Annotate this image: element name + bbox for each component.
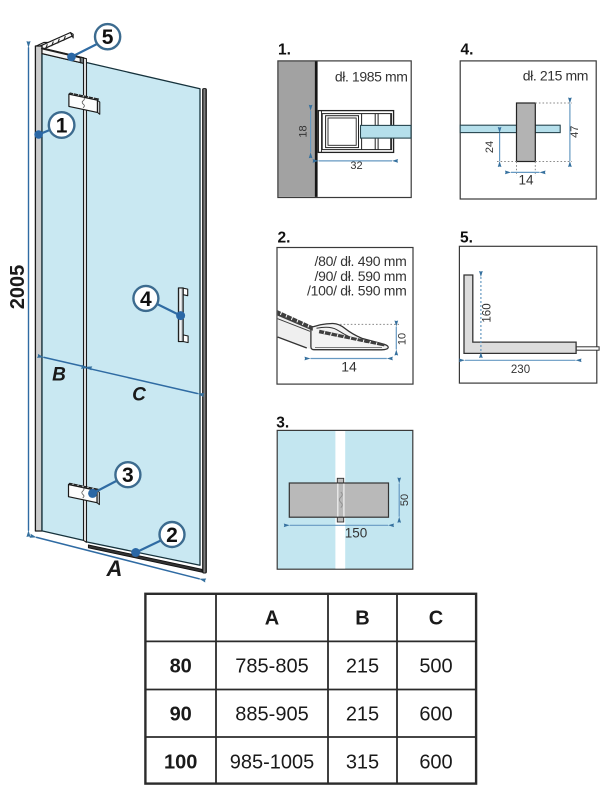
svg-text:C: C [132,385,146,406]
svg-text:/100/ dł. 590 mm: /100/ dł. 590 mm [307,283,406,299]
svg-text:5.: 5. [460,230,473,247]
svg-text:885-905: 885-905 [235,704,308,726]
svg-text:785-805: 785-805 [235,656,308,678]
svg-text:47: 47 [569,126,581,138]
svg-text:215: 215 [346,656,379,678]
svg-text:2005: 2005 [7,265,29,310]
svg-text:230: 230 [511,364,530,376]
svg-text:2.: 2. [278,230,291,247]
svg-text:3.: 3. [276,415,289,432]
svg-text:2: 2 [166,524,178,547]
svg-text:90: 90 [170,704,192,726]
svg-text:3: 3 [122,464,134,487]
svg-text:dł. 215 mm: dł. 215 mm [523,68,588,84]
svg-text:C: C [429,608,443,630]
svg-text:500: 500 [419,656,452,678]
svg-text:4: 4 [140,288,152,311]
svg-text:24: 24 [484,141,496,153]
svg-text:80: 80 [170,656,192,678]
svg-text:315: 315 [346,751,379,773]
svg-text:600: 600 [419,751,452,773]
svg-text:/80/ dł. 490 mm: /80/ dł. 490 mm [315,253,407,269]
svg-text:4.: 4. [461,42,474,59]
svg-text:14: 14 [518,173,534,188]
svg-text:1: 1 [56,115,68,138]
svg-text:A: A [106,556,123,581]
svg-text:985-1005: 985-1005 [230,751,315,773]
svg-text:100: 100 [164,751,197,773]
svg-text:32: 32 [350,160,362,172]
svg-text:18: 18 [298,125,310,137]
svg-text:1.: 1. [278,42,291,59]
svg-text:dł. 1985 mm: dł. 1985 mm [335,69,408,85]
svg-text:14: 14 [341,359,357,375]
svg-text:160: 160 [481,303,493,322]
svg-text:B: B [52,365,66,386]
svg-text:A: A [265,608,279,630]
svg-text:5: 5 [102,26,114,49]
svg-text:/90/ dł. 590 mm: /90/ dł. 590 mm [315,268,407,284]
svg-text:50: 50 [399,494,411,506]
svg-text:10: 10 [397,333,409,345]
svg-text:150: 150 [345,526,368,541]
svg-text:600: 600 [419,704,452,726]
svg-text:215: 215 [346,704,379,726]
svg-text:B: B [355,608,369,630]
